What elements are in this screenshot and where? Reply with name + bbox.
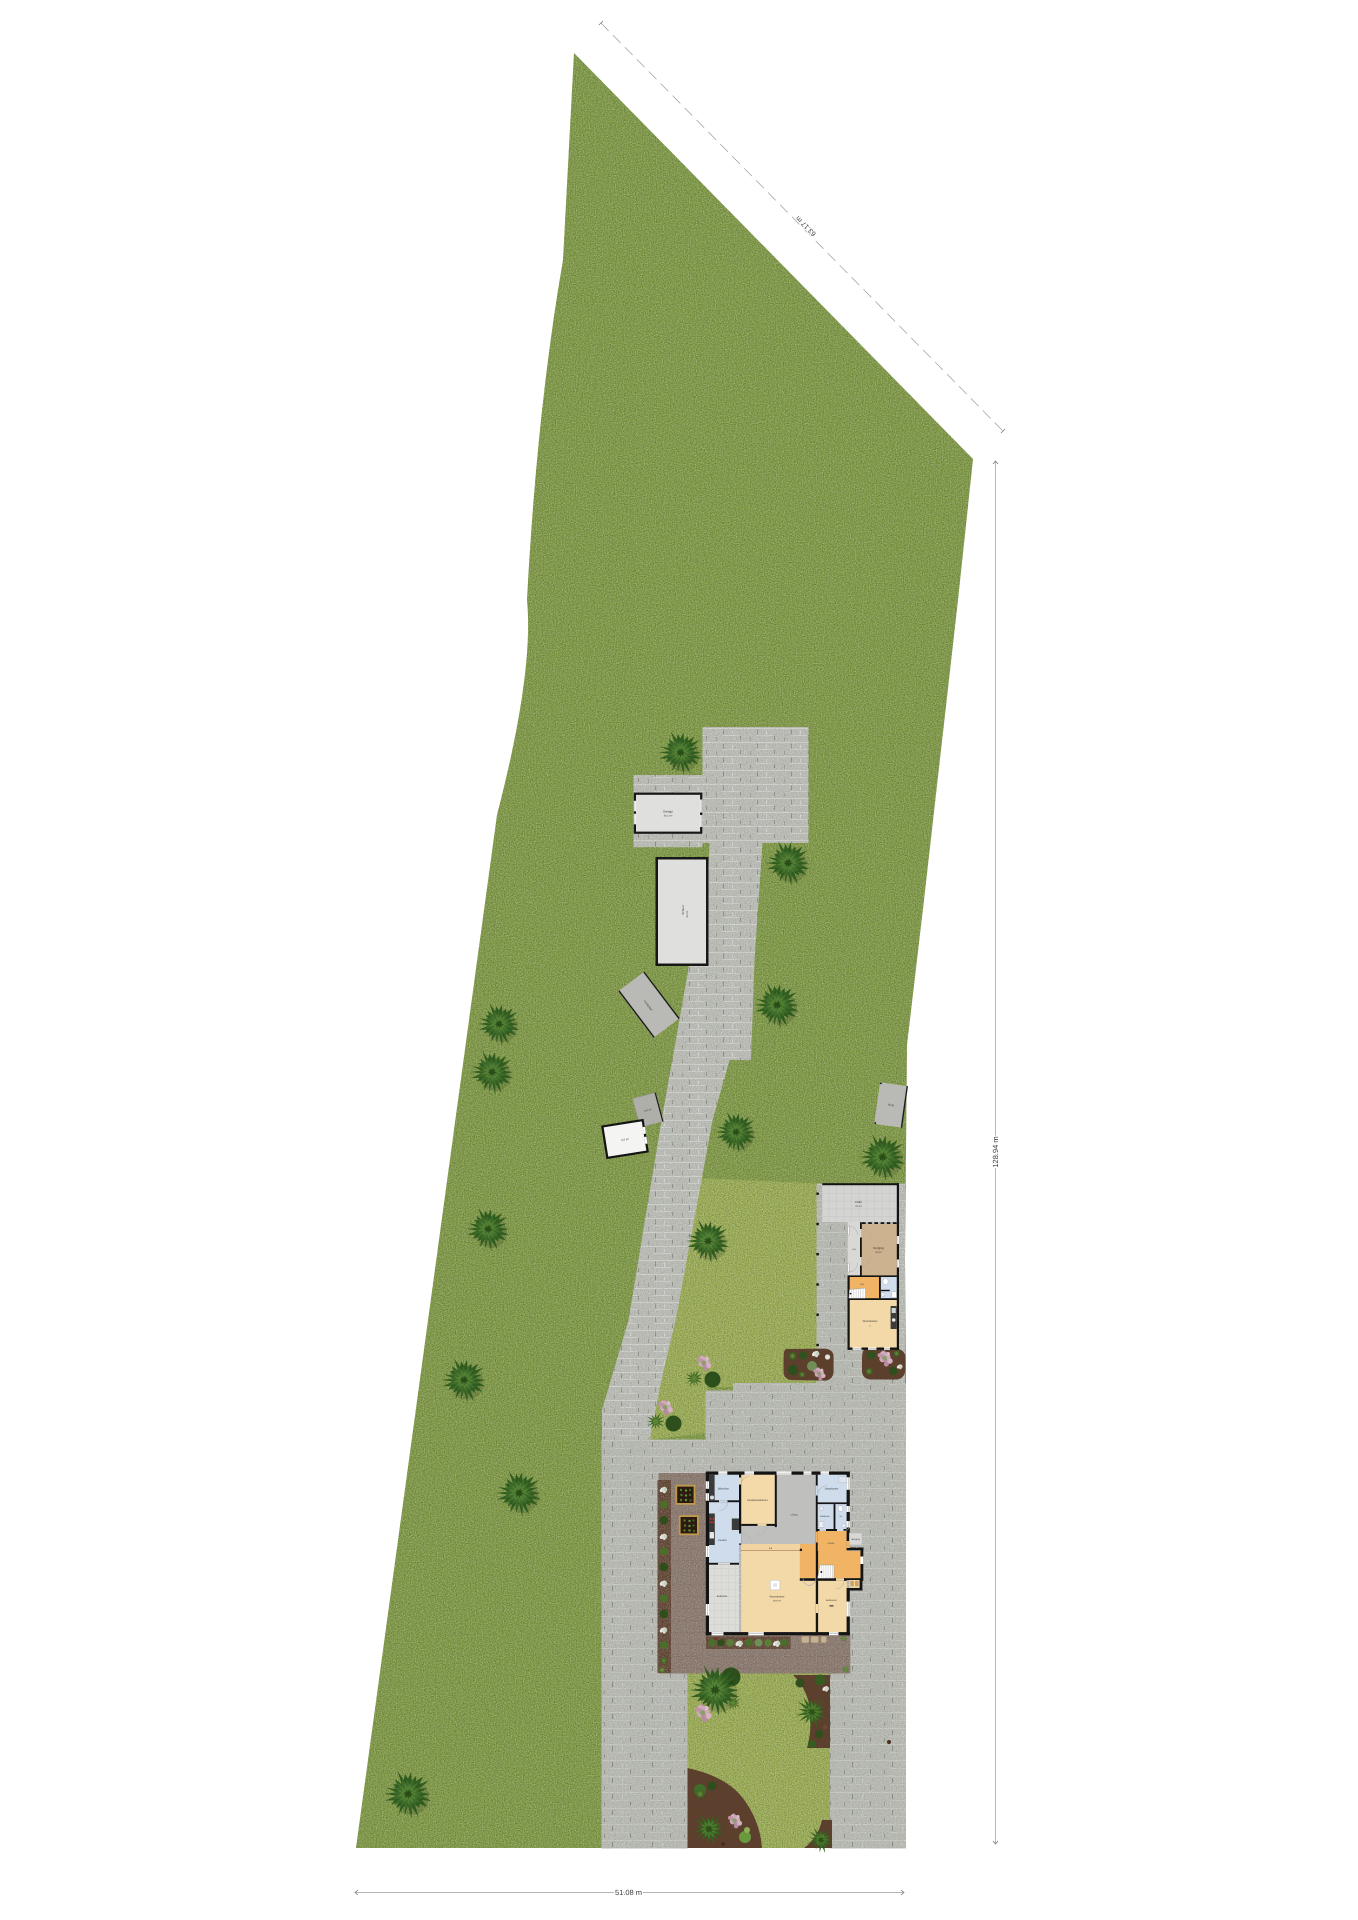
svg-text:Badkamer: Badkamer xyxy=(820,1515,830,1518)
svg-text:Berging: Berging xyxy=(873,1246,884,1250)
svg-text:16 m²: 16 m² xyxy=(875,1251,882,1254)
svg-text:Patio: Patio xyxy=(855,1200,862,1204)
svg-text:Woonkamer: Woonkamer xyxy=(769,1595,784,1599)
svg-text:Schuur: Schuur xyxy=(681,905,685,915)
svg-text:entree: entree xyxy=(828,1542,835,1545)
svg-text:Living: Living xyxy=(791,1514,798,1517)
svg-text:Garage: Garage xyxy=(663,810,673,814)
svg-text:Slaapkamer: Slaapkamer xyxy=(825,1488,839,1491)
svg-text:Berging: Berging xyxy=(852,1538,861,1541)
svg-text:Media/werkkamer: Media/werkkamer xyxy=(747,1499,768,1502)
svg-text:Woonkamer: Woonkamer xyxy=(862,1319,877,1323)
svg-text:52 m²: 52 m² xyxy=(686,911,689,918)
svg-text:⌂: ⌂ xyxy=(869,1324,871,1328)
svg-text:Eetterras: Eetterras xyxy=(717,1595,728,1598)
svg-text:31 m²: 31 m² xyxy=(855,1205,862,1208)
svg-text:36,1 m²: 36,1 m² xyxy=(664,815,673,818)
svg-text:hal: hal xyxy=(853,1248,856,1251)
svg-text:48,9 m²: 48,9 m² xyxy=(773,1600,781,1603)
svg-text:▬: ▬ xyxy=(830,1603,834,1608)
svg-text:Bijkeuken: Bijkeuken xyxy=(718,1488,730,1491)
svg-text:128.94 m: 128.94 m xyxy=(991,1136,1000,1167)
svg-text:hal: hal xyxy=(769,1547,773,1550)
svg-text:Keuken: Keuken xyxy=(718,1539,727,1542)
svg-text:hal: hal xyxy=(860,1283,864,1286)
svg-text:51.08 m: 51.08 m xyxy=(615,1888,642,1897)
